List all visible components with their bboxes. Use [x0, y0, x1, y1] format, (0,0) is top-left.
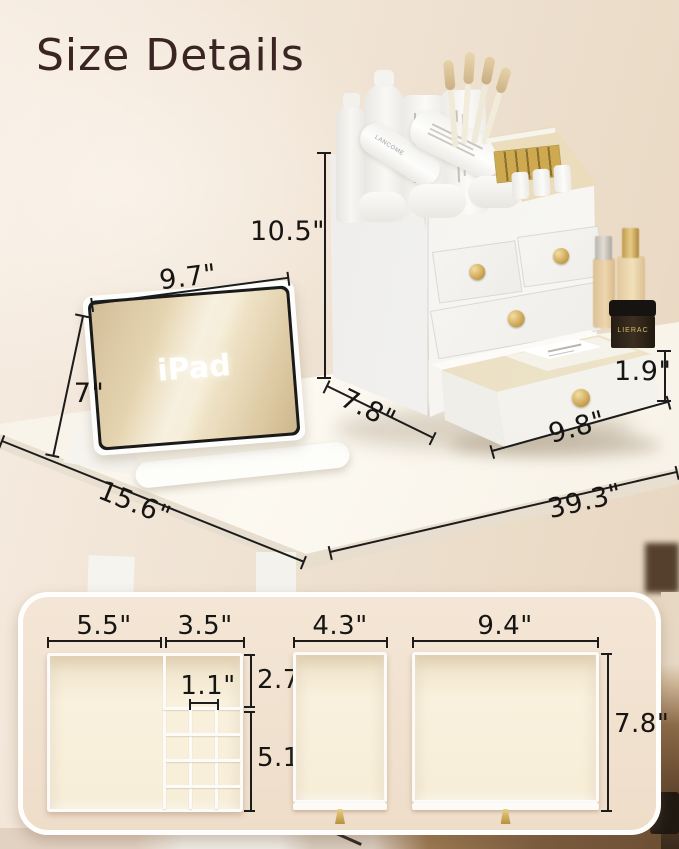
cosmetic-jar-lid: [609, 300, 656, 317]
grid-line: [166, 733, 240, 736]
dim-tray-cell-width: 1.1": [180, 671, 236, 701]
cosmetic-jar-body: LIERAC: [611, 316, 655, 348]
ipad-body: iPad: [82, 280, 306, 456]
dim-large-drawer-width: 9.4": [477, 611, 533, 641]
grid-line: [166, 785, 240, 788]
dim-large-drawer-height: 7.8": [614, 709, 666, 739]
dim-line-tray-cell: [190, 702, 218, 704]
drawer-front-lip: [412, 803, 599, 810]
under-desk-shadow: [645, 543, 679, 593]
dim-tray-right-width: 3.5": [177, 611, 233, 641]
dim-small-drawer-width: 4.3": [312, 611, 368, 641]
page-title: Size Details: [36, 30, 305, 81]
small-drawer-diagram: [293, 652, 387, 803]
dim-tray-left-width: 5.5": [76, 611, 132, 641]
cream-jar: [408, 184, 466, 218]
desk-leg: [256, 552, 296, 596]
tray-small-grid: [166, 710, 240, 809]
dim-line-large-drawer-height: [607, 654, 609, 811]
lipstick-base: [511, 172, 529, 200]
grid-line: [166, 759, 240, 762]
tube-brand-text: LANCOME: [373, 135, 404, 158]
dim-ipad-height: 7": [70, 378, 108, 409]
perfume-cap-gold: [622, 228, 639, 258]
organizer-corner-edge: [427, 213, 429, 416]
large-drawer-diagram: [412, 652, 599, 803]
drawer-knob: [468, 263, 486, 281]
ipad-logo: iPad: [91, 289, 298, 448]
dim-open-drawer-height: 1.9": [614, 356, 660, 387]
drawer-knob: [506, 309, 526, 329]
dim-line-tray-top-height: [250, 655, 252, 707]
ipad-screen: iPad: [91, 289, 298, 448]
drawer-knob: [572, 389, 590, 407]
bottle-cap: [374, 70, 394, 87]
cream-jar: [358, 192, 406, 222]
ipad-bezel: iPad: [87, 285, 300, 450]
lipstick-base: [553, 165, 571, 193]
bottle-cap: [343, 93, 360, 108]
desk-leg: [87, 555, 134, 597]
ipad-logo-text: iPad: [156, 348, 232, 389]
lipstick-base: [532, 169, 550, 197]
dim-line-tray-grid-height: [250, 712, 252, 811]
product-size-infographic: iPad LANCOME: [0, 0, 679, 849]
perfume-cap-silver: [595, 236, 612, 260]
dim-line-organizer-height: [324, 153, 326, 378]
drawer-knob: [552, 247, 570, 265]
jar-brand-text: LIERAC: [617, 327, 648, 334]
drawer-front-lip: [293, 803, 387, 810]
dim-organizer-height: 10.5": [250, 216, 318, 247]
